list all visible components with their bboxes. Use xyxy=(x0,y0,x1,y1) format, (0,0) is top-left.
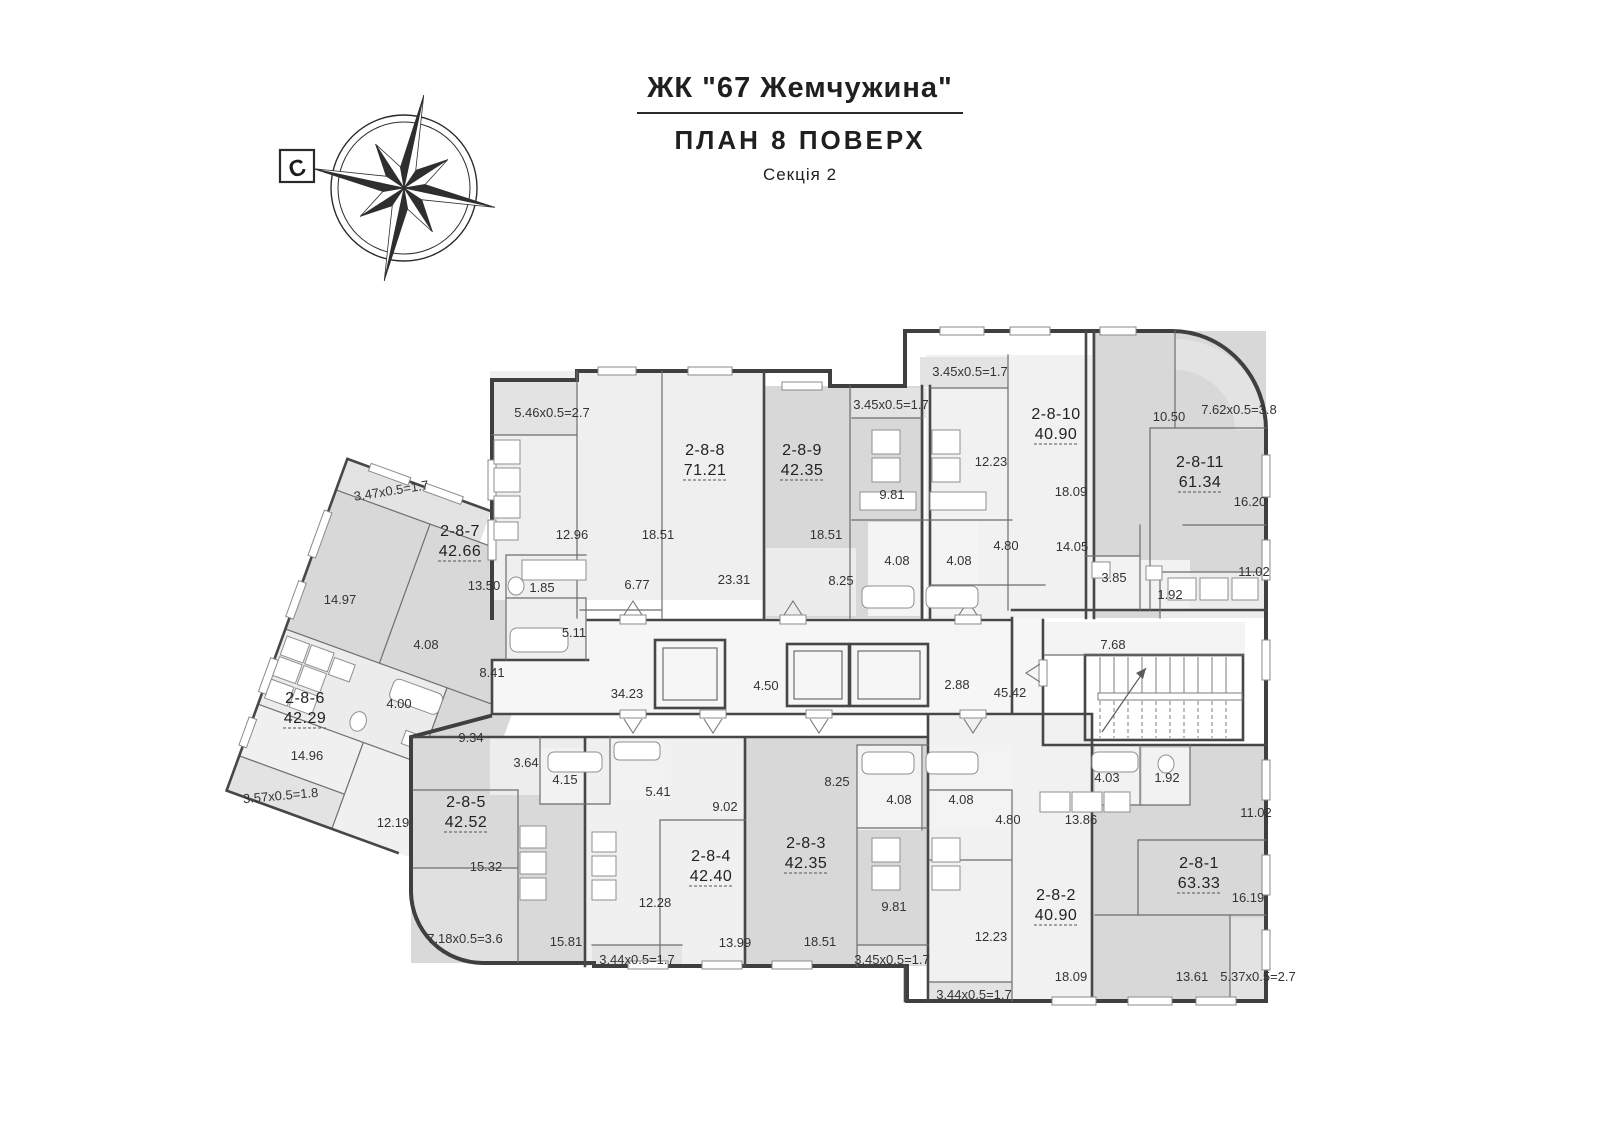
dimension-label: 3.44x0.5=1.7 xyxy=(599,952,675,967)
apartment-number: 2-8-11 xyxy=(1176,454,1224,471)
apartment-number: 2-8-4 xyxy=(691,848,731,865)
dimension-label: 18.51 xyxy=(810,527,843,542)
dimension-label: 6.77 xyxy=(624,577,649,592)
apartment-area: 42.35 xyxy=(781,462,824,479)
apartment-area: 71.21 xyxy=(684,462,727,479)
dimension-label: 1.85 xyxy=(529,580,554,595)
dimension-label: 4.08 xyxy=(884,553,909,568)
dimension-label: 45.42 xyxy=(994,685,1027,700)
dimension-label: 4.00 xyxy=(386,696,411,711)
dimension-label: 18.09 xyxy=(1055,969,1088,984)
apartment-number: 2-8-10 xyxy=(1031,406,1080,423)
dimension-label: 15.32 xyxy=(470,859,503,874)
dimension-label: 2.88 xyxy=(944,677,969,692)
dimension-label: 7.62x0.5=3.8 xyxy=(1201,402,1277,417)
dimension-label: 8.25 xyxy=(828,573,853,588)
dimension-label: 9.81 xyxy=(881,899,906,914)
apartment-number: 2-8-2 xyxy=(1036,887,1076,904)
dimension-label: 12.96 xyxy=(556,527,589,542)
dimension-label: 4.03 xyxy=(1094,770,1119,785)
apartment-area: 63.33 xyxy=(1178,875,1221,892)
apartment-number: 2-8-6 xyxy=(285,690,325,707)
apartment-number: 2-8-3 xyxy=(786,835,826,852)
dimension-label: 5.37x0.5=2.7 xyxy=(1220,969,1296,984)
dimension-label: 3.45x0.5=1.7 xyxy=(854,952,930,967)
dimension-label: 13.86 xyxy=(1065,812,1098,827)
dimension-label: 16.19 xyxy=(1232,890,1265,905)
apartment-area: 42.35 xyxy=(785,855,828,872)
dimension-label: 13.99 xyxy=(719,935,752,950)
dimension-label: 4.08 xyxy=(946,553,971,568)
dimension-label: 4.08 xyxy=(886,792,911,807)
dimension-label: 16.20 xyxy=(1234,494,1267,509)
apartment-area: 42.40 xyxy=(690,868,733,885)
dimension-label: 3.45x0.5=1.7 xyxy=(932,364,1008,379)
floor-plan-page: ЖК "67 Жемчужина" ПЛАН 8 ПОВЕРХ Секція 2 xyxy=(0,0,1600,1131)
dimension-label: 14.96 xyxy=(291,748,324,763)
dimension-label: 13.50 xyxy=(468,578,501,593)
dimension-label: 14.05 xyxy=(1056,539,1089,554)
apartment-area: 42.29 xyxy=(284,710,327,727)
stair-landing xyxy=(1045,622,1245,655)
dimension-label: 12.23 xyxy=(975,454,1008,469)
dimension-label: 10.50 xyxy=(1153,409,1186,424)
dimension-label: 4.15 xyxy=(552,772,577,787)
apartment-area: 42.52 xyxy=(445,814,488,831)
balcony-2-8-1 xyxy=(1230,918,1266,1001)
dimension-label: 18.09 xyxy=(1055,484,1088,499)
dimension-label: 1.92 xyxy=(1157,587,1182,602)
dimension-label: 23.31 xyxy=(718,572,751,587)
dimension-label: 14.97 xyxy=(324,592,357,607)
dimension-label: 8.25 xyxy=(824,774,849,789)
apartment-area: 40.90 xyxy=(1035,907,1078,924)
dimension-label: 12.19 xyxy=(377,815,410,830)
dimension-label: 3.44x0.5=1.7 xyxy=(936,987,1012,1002)
dimension-label: 9.81 xyxy=(879,487,904,502)
dimension-label: 12.28 xyxy=(639,895,672,910)
dimension-label: 34.23 xyxy=(611,686,644,701)
dimension-label: 9.02 xyxy=(712,799,737,814)
dimension-label: 5.11 xyxy=(562,625,586,640)
dimension-label: 11.02 xyxy=(1238,564,1270,579)
dimension-label: 3.85 xyxy=(1101,570,1126,585)
dimension-label: 11.02 xyxy=(1240,805,1272,820)
dimension-label: 13.61 xyxy=(1176,969,1209,984)
dimension-label: 7.68 xyxy=(1100,637,1125,652)
apartment-number: 2-8-7 xyxy=(440,523,480,540)
dimension-label: 3.64 xyxy=(513,755,538,770)
dimension-label: 12.23 xyxy=(975,929,1008,944)
dimension-label: 18.51 xyxy=(642,527,675,542)
staircase xyxy=(1085,655,1243,740)
dimension-label: 4.50 xyxy=(753,678,778,693)
dimension-label: 5.46x0.5=2.7 xyxy=(514,405,590,420)
dimension-label: 7.18x0.5=3.6 xyxy=(427,931,503,946)
apartment-area: 40.90 xyxy=(1035,426,1078,443)
apartment-area: 61.34 xyxy=(1179,474,1222,491)
dimension-label: 4.08 xyxy=(413,637,438,652)
apartment-number: 2-8-5 xyxy=(446,794,486,811)
dimension-label: 4.80 xyxy=(995,812,1020,827)
dimension-label: 8.41 xyxy=(479,665,504,680)
apartment-area: 42.66 xyxy=(439,543,482,560)
dimension-label: 18.51 xyxy=(804,934,837,949)
dimension-label: 4.80 xyxy=(993,538,1018,553)
apartment-number: 2-8-9 xyxy=(782,442,822,459)
dimension-label: 5.41 xyxy=(645,784,670,799)
dimension-label: 9.34 xyxy=(458,730,483,745)
compass-rose: С xyxy=(280,76,515,301)
apartment-number: 2-8-8 xyxy=(685,442,725,459)
dimension-label: 3.45x0.5=1.7 xyxy=(853,397,929,412)
dimension-label: 1.92 xyxy=(1154,770,1179,785)
floor-plan-drawing: С xyxy=(0,0,1600,1131)
dimension-label: 4.08 xyxy=(948,792,973,807)
apartment-number: 2-8-1 xyxy=(1179,855,1219,872)
dimension-label: 15.81 xyxy=(550,934,583,949)
